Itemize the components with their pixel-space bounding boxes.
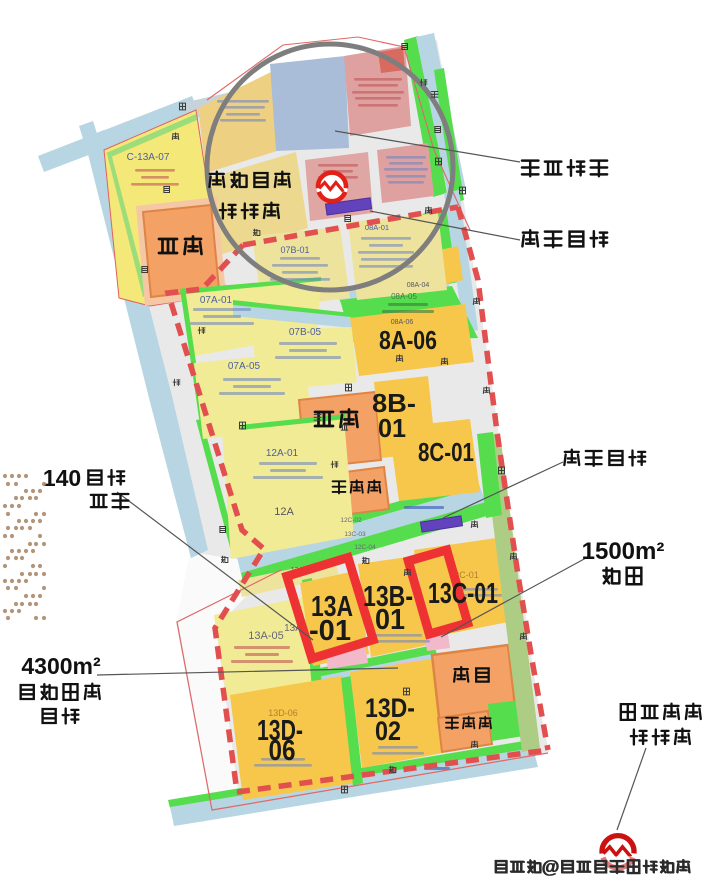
svg-text:13A-05: 13A-05	[248, 630, 283, 642]
svg-text:07A-01: 07A-01	[200, 295, 233, 306]
svg-text:12A: 12A	[274, 506, 294, 518]
svg-text:07B-01: 07B-01	[280, 245, 309, 255]
svg-text:12A-01: 12A-01	[266, 448, 299, 459]
svg-text:140: 140	[43, 465, 81, 491]
svg-text:07A-05: 07A-05	[228, 361, 261, 372]
svg-text:06: 06	[269, 735, 296, 767]
svg-text:8A-06: 8A-06	[379, 325, 437, 355]
svg-text:8C-01: 8C-01	[418, 437, 474, 467]
svg-text:12C-04: 12C-04	[354, 544, 376, 551]
svg-text:08A-05: 08A-05	[391, 292, 417, 301]
svg-text:01: 01	[375, 604, 405, 636]
svg-text:13C-01: 13C-01	[428, 578, 498, 610]
svg-text:@: @	[542, 857, 560, 877]
svg-text:12C-02: 12C-02	[340, 517, 362, 524]
svg-text:01: 01	[378, 413, 406, 443]
svg-text:13C-03: 13C-03	[344, 531, 366, 538]
svg-text:02: 02	[375, 716, 401, 746]
svg-text:4300m²: 4300m²	[21, 653, 101, 679]
svg-text:1500m²: 1500m²	[582, 538, 665, 565]
svg-text:08A-04: 08A-04	[407, 282, 430, 289]
svg-text:07B-05: 07B-05	[289, 327, 322, 338]
svg-text:-01: -01	[309, 615, 351, 647]
svg-text:C-13A-07: C-13A-07	[127, 152, 170, 163]
